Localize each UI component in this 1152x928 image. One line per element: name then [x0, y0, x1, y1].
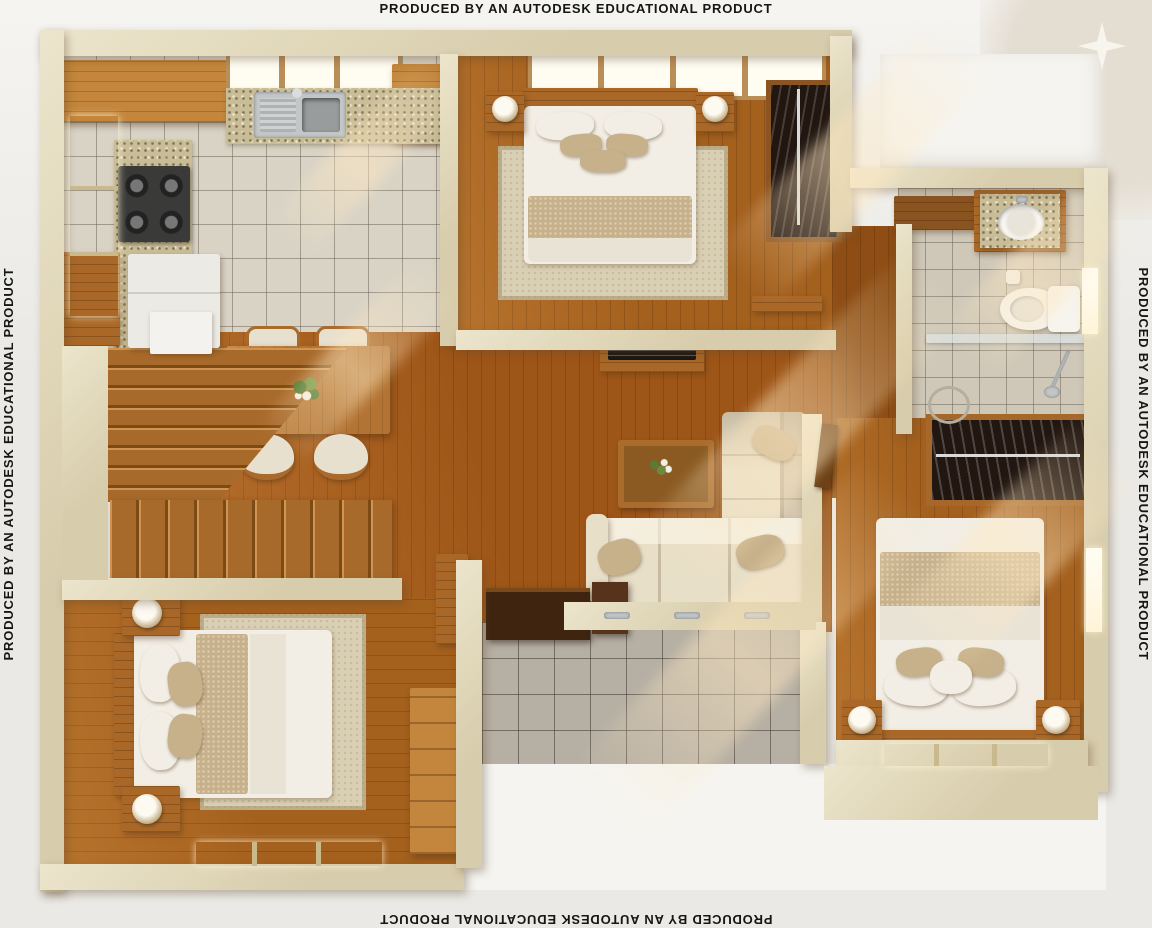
table-lamp	[132, 794, 162, 824]
roof-terrace	[880, 54, 1106, 172]
bedroom3-window	[196, 842, 382, 866]
wardrobe-rail	[936, 454, 1080, 457]
window-hardware	[674, 612, 700, 619]
wall	[440, 54, 458, 346]
bed3-blanket	[196, 634, 248, 794]
wall	[800, 622, 826, 764]
shower-head	[1044, 386, 1060, 398]
kitchen-appliance-tray	[150, 312, 212, 354]
toilet-seat	[1010, 296, 1044, 322]
exterior-deck	[824, 766, 1098, 820]
bedroom2-wardrobe	[926, 414, 1102, 506]
wall	[40, 30, 852, 56]
toilet-flush-button	[1006, 270, 1020, 284]
master-bed-accent-pillow	[580, 150, 626, 172]
vanity-basin	[998, 204, 1044, 240]
wall	[40, 30, 64, 892]
floor-plan-render: PRODUCED BY AN AUTODESK EDUCATIONAL PROD…	[0, 0, 1152, 928]
bedroom2-side-window	[1086, 548, 1102, 632]
sink-drainboard	[260, 98, 296, 132]
coffee-table-flowers	[646, 456, 674, 478]
wall	[62, 578, 402, 600]
watermark-bottom: PRODUCED BY AN AUTODESK EDUCATIONAL PROD…	[0, 912, 1152, 927]
bed3-headboard	[114, 632, 136, 796]
bed2-accent-pillow	[930, 660, 972, 694]
kitchen-sink	[254, 92, 346, 138]
watermark-left: PRODUCED BY AN AUTODESK EDUCATIONAL PROD…	[1, 268, 16, 661]
wall	[456, 560, 482, 868]
wall	[40, 864, 464, 890]
left-balcony-ledge	[62, 346, 108, 580]
window-hardware	[744, 612, 770, 619]
table-centerpiece-plant	[288, 372, 322, 406]
bed2-blanket	[880, 552, 1040, 608]
bedroom2-window	[884, 744, 1048, 766]
kitchen-window	[70, 116, 118, 316]
window-hardware	[604, 612, 630, 619]
shower-glass-panel	[926, 334, 1086, 343]
bed3-sheet-fold	[250, 634, 286, 794]
table-lamp	[702, 96, 728, 122]
living-window-ledge	[564, 602, 816, 630]
master-bed-blanket	[528, 196, 692, 242]
table-lamp	[848, 706, 876, 734]
sink-faucet	[292, 88, 302, 98]
watermark-right: PRODUCED BY AN AUTODESK EDUCATIONAL PROD…	[1136, 268, 1151, 661]
bedroom-bench	[752, 296, 822, 312]
toilet-tank	[1048, 286, 1080, 332]
upper-cabinet-left	[62, 60, 232, 122]
table-lamp	[1042, 706, 1070, 734]
wall	[1084, 168, 1108, 792]
table-lamp	[492, 96, 518, 122]
wardrobe-rail	[797, 89, 800, 225]
master-bed-sheet-fold	[528, 238, 692, 262]
sink-basin	[302, 98, 340, 132]
table-lamp	[132, 598, 162, 628]
bedroom3-dresser	[410, 688, 462, 854]
dining-chair	[314, 434, 368, 480]
wall	[830, 36, 852, 232]
bed2-sheet-fold	[880, 606, 1040, 640]
kitchen-stove	[118, 166, 190, 242]
wall	[896, 224, 912, 434]
vanity-faucet	[1016, 196, 1028, 203]
wall	[850, 168, 1090, 188]
wall	[456, 330, 836, 350]
watermark-top: PRODUCED BY AN AUTODESK EDUCATIONAL PROD…	[0, 1, 1152, 16]
staircase-lower-run	[110, 500, 392, 586]
patio-floor	[482, 622, 802, 764]
floor-drain-ring	[928, 386, 970, 424]
bathroom-window	[1082, 268, 1098, 334]
